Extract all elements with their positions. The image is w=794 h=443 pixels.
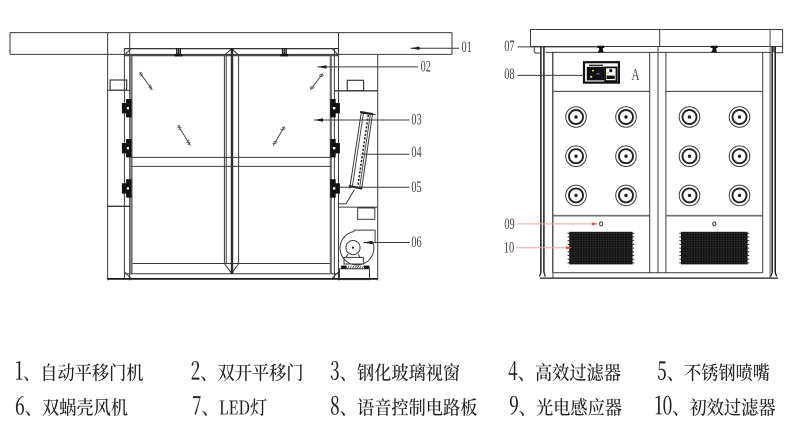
svg-text:02: 02 <box>421 56 431 75</box>
svg-text:A: A <box>632 65 640 84</box>
svg-text:10: 10 <box>504 238 514 257</box>
svg-text:06: 06 <box>411 232 421 251</box>
svg-text:03: 03 <box>411 109 421 128</box>
svg-text:08: 08 <box>504 64 514 83</box>
svg-text:09: 09 <box>504 214 514 233</box>
svg-text:04: 04 <box>411 142 421 161</box>
svg-text:01: 01 <box>462 37 472 56</box>
svg-text:05: 05 <box>411 177 421 196</box>
svg-text:07: 07 <box>504 36 514 55</box>
